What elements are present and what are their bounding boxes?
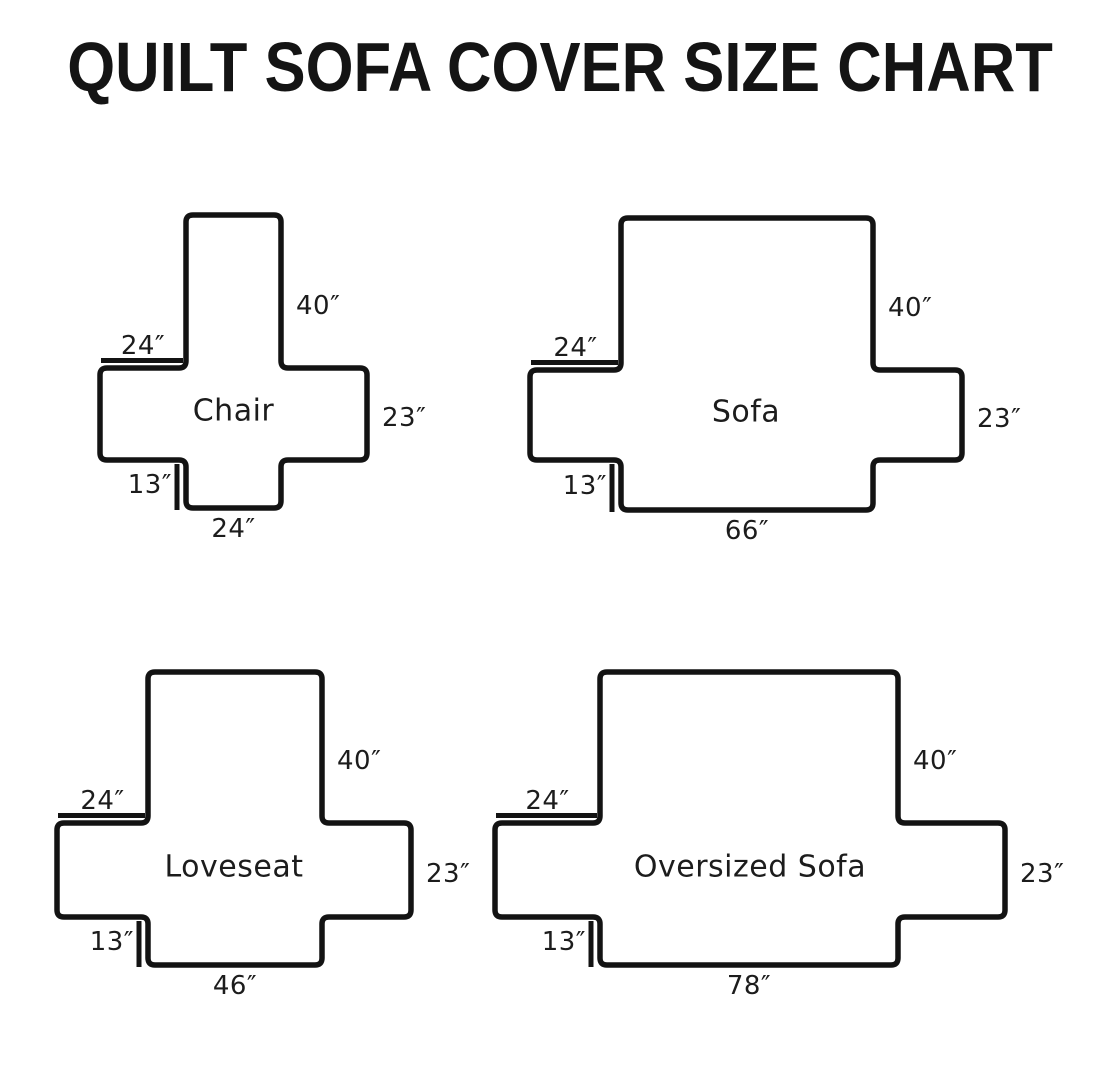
size-chart-canvas: 40″ 24″ Chair 23″ 13″ 24″ 40″ 24″ Sofa 2… <box>0 0 1100 1092</box>
oversized-sofa-cover-outline <box>495 672 1005 965</box>
diagram-chair: 40″ 24″ Chair 23″ 13″ 24″ <box>100 215 426 544</box>
chair-bottom-width-label: 24″ <box>211 514 255 544</box>
chair-front-drop-label: 13″ <box>128 470 172 500</box>
loveseat-arm-width-label: 24″ <box>80 786 124 816</box>
oversized-sofa-front-drop-label: 13″ <box>542 927 586 957</box>
sofa-side-height-label: 23″ <box>977 404 1021 434</box>
loveseat-side-height-label: 23″ <box>426 859 470 889</box>
sofa-front-drop-label: 13″ <box>563 471 607 501</box>
loveseat-cover-outline <box>57 672 411 965</box>
sofa-bottom-width-label: 66″ <box>725 516 769 546</box>
loveseat-bottom-width-label: 46″ <box>213 971 257 1001</box>
diagram-loveseat: 40″ 24″ Loveseat 23″ 13″ 46″ <box>57 672 470 1001</box>
chair-arm-width-label: 24″ <box>121 331 165 361</box>
oversized-sofa-name-label: Oversized Sofa <box>634 850 866 885</box>
chair-back-height-label: 40″ <box>296 291 340 321</box>
oversized-sofa-side-height-label: 23″ <box>1020 859 1064 889</box>
oversized-sofa-bottom-width-label: 78″ <box>727 971 771 1001</box>
size-chart-page: QUILT SOFA COVER SIZE CHART 40″ 24″ Chai… <box>0 0 1100 1092</box>
sofa-arm-width-label: 24″ <box>553 333 597 363</box>
loveseat-back-height-label: 40″ <box>337 746 381 776</box>
oversized-sofa-arm-width-label: 24″ <box>525 786 569 816</box>
oversized-sofa-back-height-label: 40″ <box>913 746 957 776</box>
loveseat-front-drop-label: 13″ <box>90 927 134 957</box>
diagram-sofa: 40″ 24″ Sofa 23″ 13″ 66″ <box>530 218 1021 546</box>
diagram-oversized-sofa: 40″ 24″ Oversized Sofa 23″ 13″ 78″ <box>495 672 1064 1001</box>
sofa-name-label: Sofa <box>712 395 780 430</box>
sofa-back-height-label: 40″ <box>888 293 932 323</box>
chair-name-label: Chair <box>193 394 275 429</box>
loveseat-name-label: Loveseat <box>165 850 304 885</box>
chair-side-height-label: 23″ <box>382 403 426 433</box>
